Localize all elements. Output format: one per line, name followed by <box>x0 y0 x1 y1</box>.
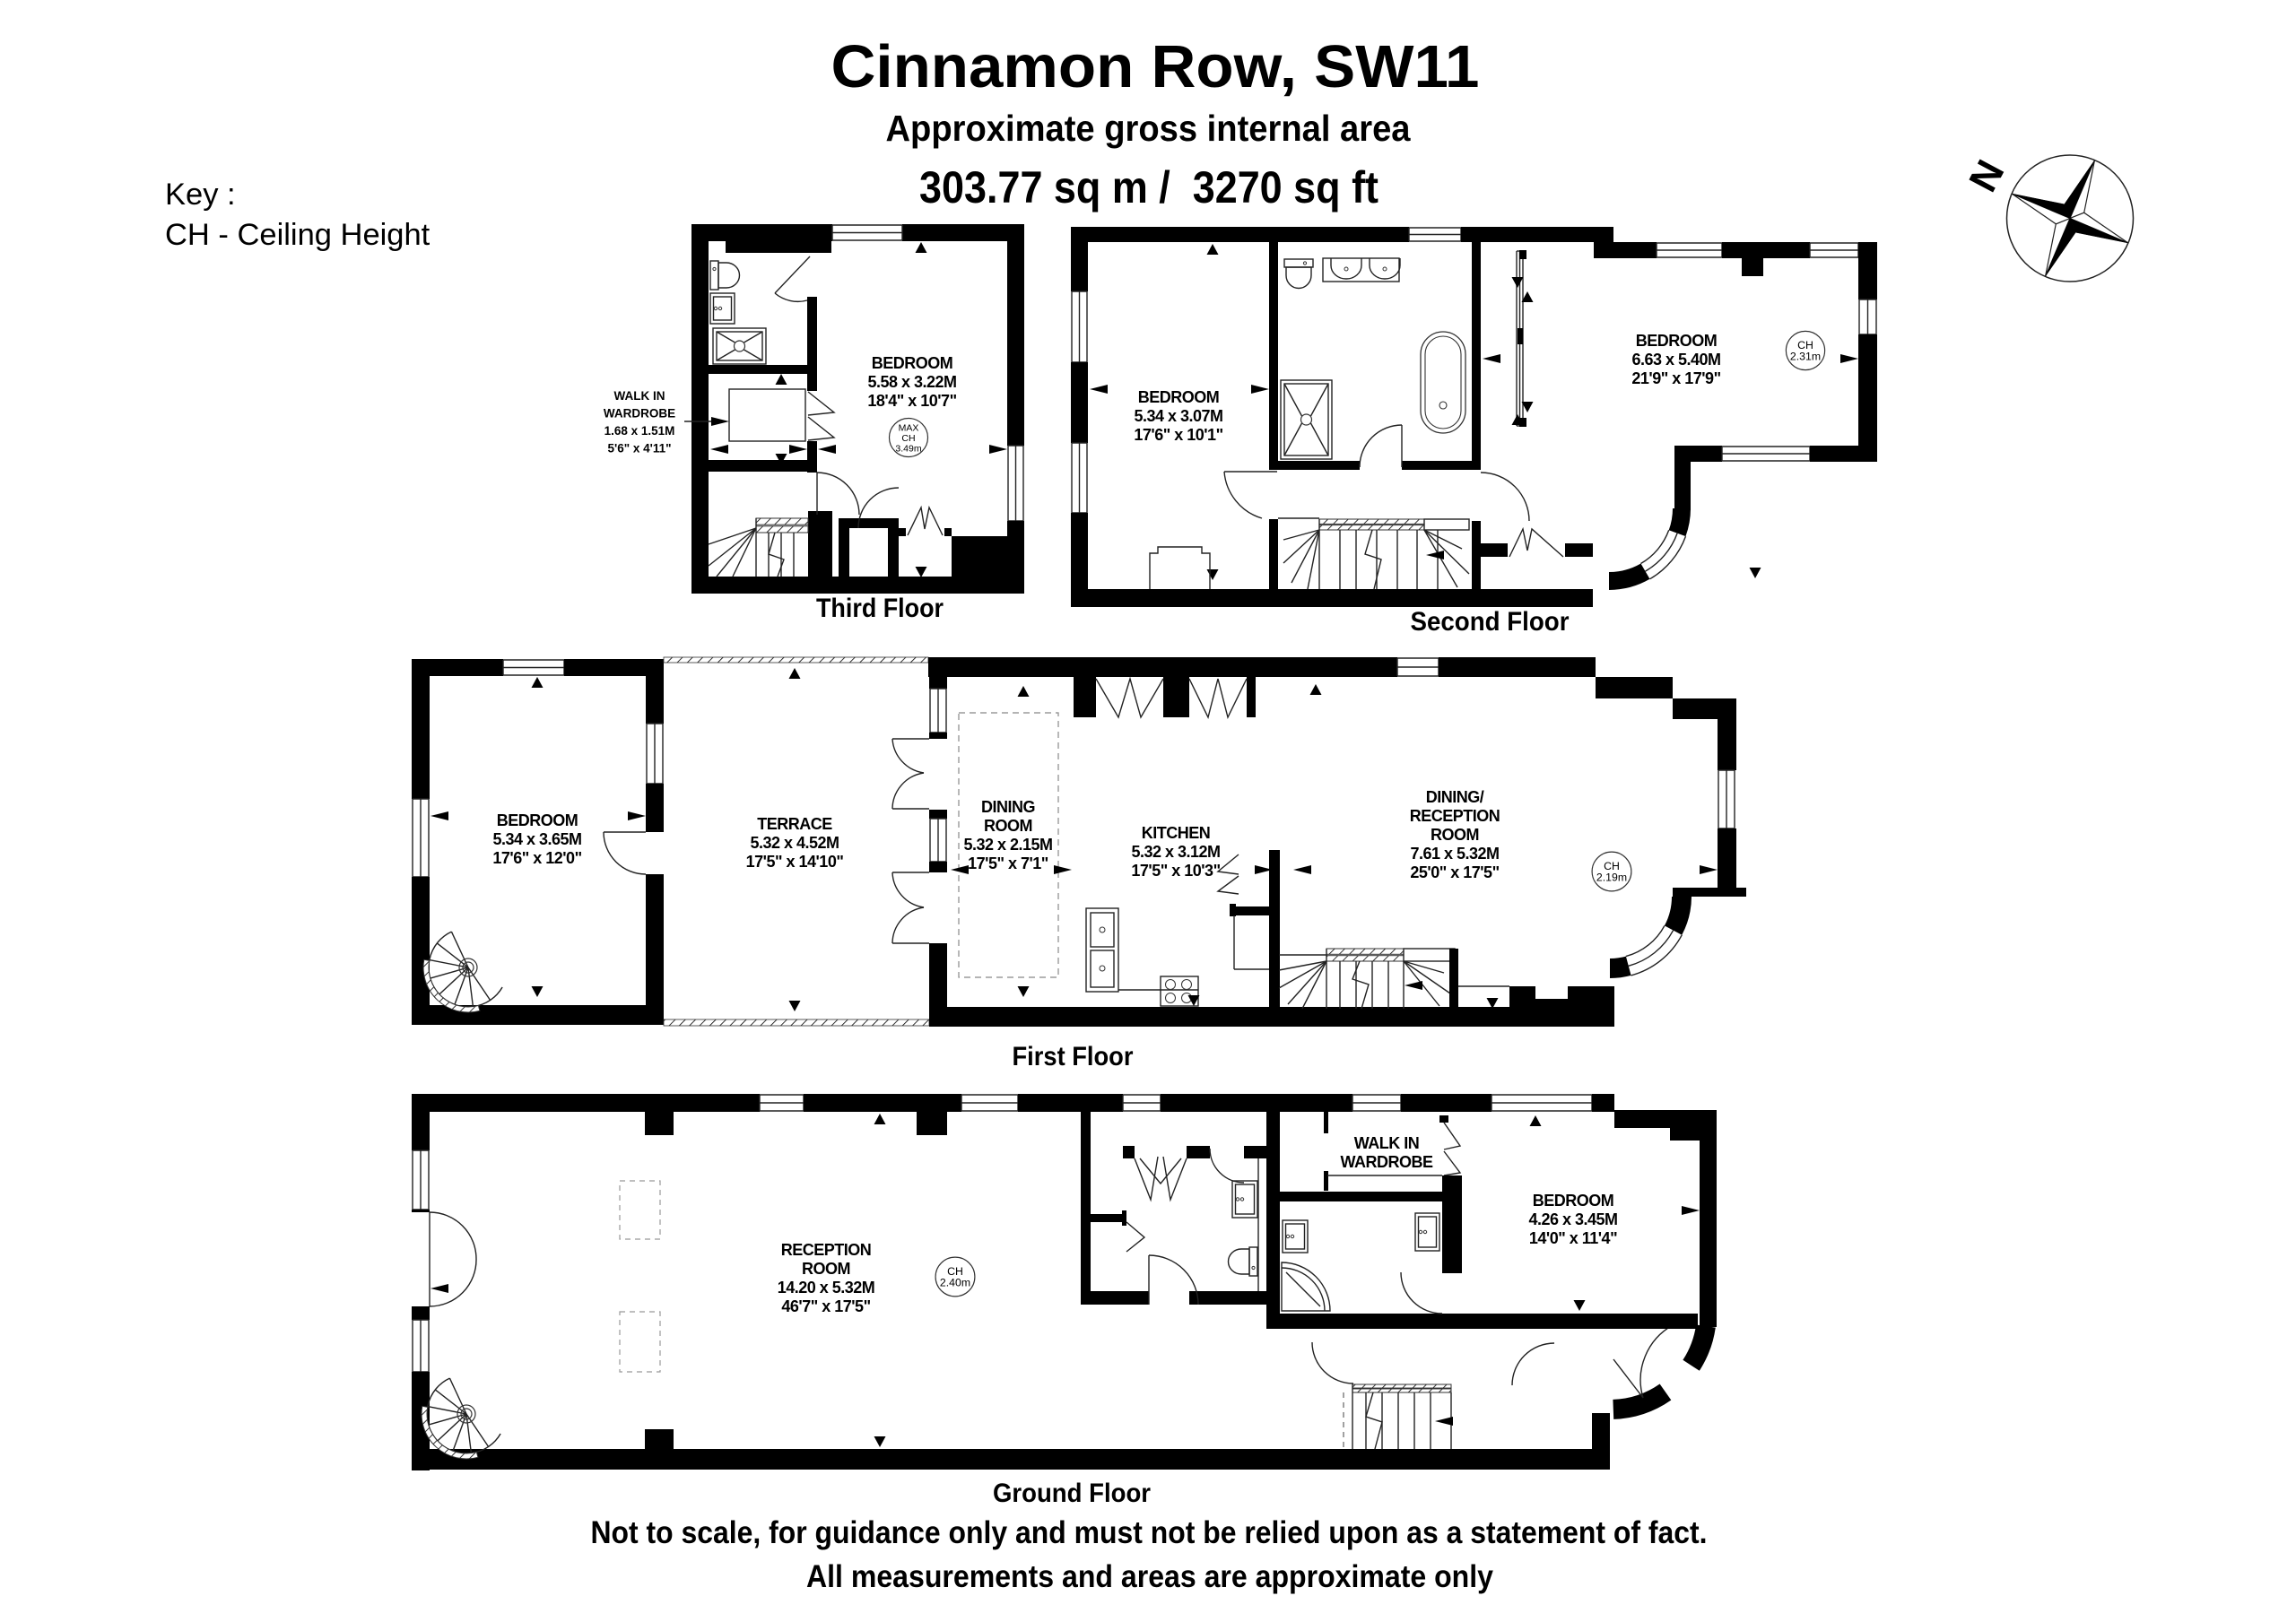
svg-text:RECEPTION: RECEPTION <box>1410 807 1500 825</box>
svg-text:4.26 x 3.45M: 4.26 x 3.45M <box>1528 1210 1617 1228</box>
svg-text:Not to scale, for guidance onl: Not to scale, for guidance only and must… <box>591 1514 1708 1550</box>
svg-text:First Floor: First Floor <box>1013 1042 1134 1071</box>
svg-text:TERRACE: TERRACE <box>757 815 832 833</box>
svg-text:RECEPTION: RECEPTION <box>781 1241 872 1259</box>
svg-text:17'5" x 10'3": 17'5" x 10'3" <box>1131 862 1220 880</box>
svg-text:5.32 x 3.12M: 5.32 x 3.12M <box>1131 843 1220 861</box>
svg-text:BEDROOM: BEDROOM <box>1533 1192 1614 1210</box>
svg-text:Approximate gross internal are: Approximate gross internal area <box>886 108 1412 149</box>
svg-text:BEDROOM: BEDROOM <box>1138 388 1220 406</box>
svg-text:BEDROOM: BEDROOM <box>1636 332 1718 350</box>
svg-text:WALK IN: WALK IN <box>1354 1134 1420 1152</box>
svg-text:17'6" x 12'0": 17'6" x 12'0" <box>492 849 581 867</box>
svg-text:1.68 x 1.51M: 1.68 x 1.51M <box>604 424 675 438</box>
svg-text:3.49m: 3.49m <box>895 444 921 455</box>
svg-text:7.61 x 5.32M: 7.61 x 5.32M <box>1410 845 1499 863</box>
svg-text:14'0" x 11'4": 14'0" x 11'4" <box>1529 1229 1617 1247</box>
svg-text:25'0" x 17'5": 25'0" x 17'5" <box>1410 863 1499 881</box>
svg-text:All measurements and areas are: All measurements and areas are approxima… <box>806 1558 1493 1594</box>
svg-text:17'5" x 7'1": 17'5" x 7'1" <box>968 854 1048 872</box>
svg-text:MAX: MAX <box>899 423 919 434</box>
svg-text:ROOM: ROOM <box>802 1260 850 1278</box>
svg-text:Ground Floor: Ground Floor <box>993 1479 1151 1508</box>
svg-text:2.19m: 2.19m <box>1596 872 1627 884</box>
svg-text:Second Floor: Second Floor <box>1411 607 1570 637</box>
svg-text:303.77 sq m / 3270 sq ft: 303.77 sq m / 3270 sq ft <box>919 161 1378 213</box>
svg-text:18'4" x 10'7": 18'4" x 10'7" <box>867 392 956 410</box>
svg-text:KITCHEN: KITCHEN <box>1142 824 1211 842</box>
svg-text:WARDROBE: WARDROBE <box>1341 1153 1433 1171</box>
svg-text:Third Floor: Third Floor <box>816 594 944 623</box>
svg-text:Cinnamon Row, SW11: Cinnamon Row, SW11 <box>831 33 1480 100</box>
svg-text:21'9" x 17'9": 21'9" x 17'9" <box>1631 369 1720 387</box>
svg-text:WALK IN: WALK IN <box>614 389 665 403</box>
svg-text:17'5" x 14'10": 17'5" x 14'10" <box>746 853 844 871</box>
svg-text:5.34 x 3.07M: 5.34 x 3.07M <box>1134 407 1222 425</box>
svg-text:BEDROOM: BEDROOM <box>872 354 953 372</box>
svg-text:5'6" x 4'11": 5'6" x 4'11" <box>607 442 671 455</box>
svg-text:46'7" x 17'5": 46'7" x 17'5" <box>781 1297 870 1315</box>
svg-text:DINING/: DINING/ <box>1426 788 1484 806</box>
svg-text:17'6" x 10'1": 17'6" x 10'1" <box>1134 426 1222 444</box>
svg-text:WARDROBE: WARDROBE <box>604 407 675 421</box>
svg-text:5.58 x 3.22M: 5.58 x 3.22M <box>867 373 956 391</box>
svg-text:ROOM: ROOM <box>984 817 1032 835</box>
svg-text:CH: CH <box>901 433 915 444</box>
svg-text:2.31m: 2.31m <box>1790 350 1821 362</box>
svg-text:14.20 x 5.32M: 14.20 x 5.32M <box>778 1279 875 1297</box>
svg-text:5.34 x 3.65M: 5.34 x 3.65M <box>492 830 581 848</box>
svg-text:5.32 x 2.15M: 5.32 x 2.15M <box>963 836 1052 854</box>
svg-text:BEDROOM: BEDROOM <box>497 811 578 829</box>
svg-text:2.40m: 2.40m <box>940 1277 970 1289</box>
svg-text:ROOM: ROOM <box>1431 826 1479 844</box>
svg-text:CH - Ceiling Height: CH - Ceiling Height <box>165 218 430 252</box>
svg-text:Key :: Key : <box>165 178 236 212</box>
svg-text:DINING: DINING <box>981 798 1035 816</box>
svg-text:6.63 x 5.40M: 6.63 x 5.40M <box>1631 351 1720 369</box>
svg-text:5.32 x 4.52M: 5.32 x 4.52M <box>750 834 839 852</box>
